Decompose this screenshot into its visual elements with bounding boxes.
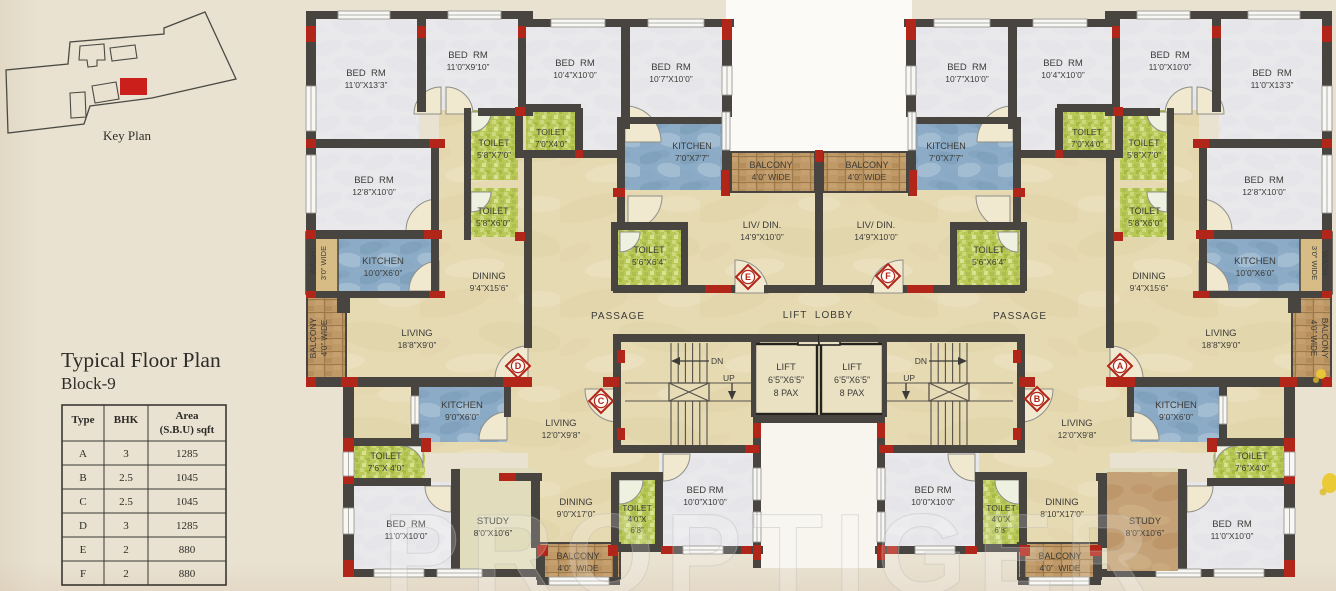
svg-text:E: E [80,544,87,556]
svg-text:11’0”X10’0”: 11’0”X10’0” [1211,531,1254,541]
svg-text:TOILET: TOILET [1236,451,1268,461]
svg-text:KITCHEN: KITCHEN [672,141,712,151]
svg-text:10’0”X6’0”: 10’0”X6’0” [1236,268,1275,278]
svg-text:BALCONY: BALCONY [749,160,792,170]
svg-text:BHK: BHK [114,414,139,426]
svg-text:KITCHEN: KITCHEN [1234,256,1276,267]
svg-text:4’0” WIDE: 4’0” WIDE [320,320,329,356]
svg-text:7’0”X4’0”: 7’0”X4’0” [1071,140,1103,149]
svg-text:12’0”X9’8”: 12’0”X9’8” [542,430,581,440]
svg-text:7’0”X7’7”: 7’0”X7’7” [675,153,709,163]
svg-text:11’0”X9’10”: 11’0”X9’10” [447,62,490,72]
svg-text:11’0”X13’3”: 11’0”X13’3” [1251,80,1294,90]
svg-text:BED RM: BED RM [1252,68,1292,79]
svg-text:WASH: WASH [309,251,318,275]
svg-text:11’0”X13’3”: 11’0”X13’3” [345,80,388,90]
svg-text:3: 3 [123,520,129,532]
svg-text:TOILET: TOILET [478,138,510,148]
svg-text:3’0” WIDE: 3’0” WIDE [1310,246,1319,280]
svg-text:LIFT: LIFT [776,362,796,373]
svg-text:8 PAX: 8 PAX [840,388,865,398]
svg-text:9’0”X6’0”: 9’0”X6’0” [445,412,479,422]
svg-text:LIV/ DIN.: LIV/ DIN. [857,220,896,231]
svg-text:4’0” WIDE: 4’0” WIDE [848,172,887,182]
svg-text:880: 880 [179,544,196,556]
svg-text:1285: 1285 [176,520,199,532]
svg-text:BALCONY: BALCONY [1320,318,1330,359]
svg-text:Key Plan: Key Plan [103,128,152,143]
svg-text:12’8”X10’0”: 12’8”X10’0” [1242,187,1286,197]
svg-text:LIVING: LIVING [401,328,432,339]
svg-text:BALCONY: BALCONY [308,317,318,358]
svg-text:BED RM: BED RM [448,50,488,61]
svg-text:LIV/ DIN.: LIV/ DIN. [743,220,782,231]
svg-text:BALCONY: BALCONY [845,160,888,170]
svg-text:18’8”X9’0”: 18’8”X9’0” [1202,340,1241,350]
svg-text:10’7”X10’0”: 10’7”X10’0” [945,74,989,84]
svg-text:Typical Floor Plan: Typical Floor Plan [61,348,221,372]
svg-text:TOILET: TOILET [536,127,566,137]
svg-text:5’8”X6’0”: 5’8”X6’0” [1128,218,1162,228]
svg-text:F: F [80,568,86,580]
svg-text:2.5: 2.5 [119,496,133,508]
svg-text:BED RM: BED RM [346,68,386,79]
svg-text:TOILET: TOILET [973,245,1005,255]
svg-text:7’6”X 4’0”: 7’6”X 4’0” [368,463,405,473]
svg-text:5’6”X6’4”: 5’6”X6’4” [632,257,666,267]
svg-text:BED RM: BED RM [1244,175,1284,186]
svg-text:Type: Type [71,414,94,426]
svg-text:LIFT: LIFT [842,362,862,373]
svg-text:KITCHEN: KITCHEN [926,141,966,151]
svg-text:1285: 1285 [176,448,199,460]
svg-text:BED RM: BED RM [1212,519,1252,530]
svg-text:C: C [598,396,605,406]
svg-text:14’9”X10’0”: 14’9”X10’0” [740,232,784,242]
svg-text:E: E [745,272,751,282]
svg-text:WASH: WASH [1320,251,1329,275]
svg-text:BED RM: BED RM [947,62,987,73]
svg-text:10’4”X10’0”: 10’4”X10’0” [553,70,597,80]
svg-text:3: 3 [123,448,129,460]
svg-text:DN: DN [915,356,927,366]
svg-text:10’7”X10’0”: 10’7”X10’0” [649,74,693,84]
svg-text:LIVING: LIVING [1061,418,1092,429]
svg-text:TOILET: TOILET [1128,138,1160,148]
svg-text:A: A [1117,361,1124,371]
svg-text:TOILET: TOILET [477,206,509,216]
svg-text:TOILET: TOILET [1129,206,1161,216]
svg-text:12’8”X10’0”: 12’8”X10’0” [352,187,396,197]
svg-text:F: F [885,271,891,281]
svg-text:3’0” WIDE: 3’0” WIDE [319,246,328,280]
svg-text:DINING: DINING [1132,271,1165,282]
svg-text:7’6”X4’0”: 7’6”X4’0” [1235,463,1269,473]
svg-text:DINING: DINING [472,271,505,282]
svg-text:7’0”X7’7”: 7’0”X7’7” [929,153,963,163]
svg-text:12’0”X9’8”: 12’0”X9’8” [1058,430,1097,440]
svg-text:5’6”X6’4”: 5’6”X6’4” [972,257,1006,267]
svg-text:5’8”X6’0”: 5’8”X6’0” [476,218,510,228]
svg-text:9’4”X15’6”: 9’4”X15’6” [1130,283,1169,293]
svg-text:DN: DN [711,356,723,366]
svg-text:4’0” WIDE: 4’0” WIDE [752,172,791,182]
svg-text:BED RM: BED RM [354,175,394,186]
svg-text:D: D [79,520,87,532]
svg-text:5’8”X7’0”: 5’8”X7’0” [477,150,511,160]
svg-text:KITCHEN: KITCHEN [362,256,404,267]
svg-text:BED RM: BED RM [1150,50,1190,61]
svg-text:UP: UP [903,373,915,383]
svg-text:2: 2 [123,568,129,580]
svg-text:11’0”X10’0”: 11’0”X10’0” [1149,62,1192,72]
svg-text:1045: 1045 [176,472,199,484]
svg-text:LIVING: LIVING [1205,328,1236,339]
svg-text:14’9”X10’0”: 14’9”X10’0” [854,232,898,242]
svg-text:D: D [515,361,522,371]
svg-text:Block-9: Block-9 [61,374,116,393]
svg-text:(S.B.U) sqft: (S.B.U) sqft [160,424,215,436]
svg-text:4’0” WIDE: 4’0” WIDE [1309,320,1318,356]
svg-text:BED RM: BED RM [1043,58,1083,69]
svg-text:2: 2 [123,544,129,556]
svg-text:TOILET: TOILET [1072,127,1102,137]
svg-text:880: 880 [179,568,196,580]
svg-text:BED RM: BED RM [555,58,595,69]
svg-text:PROPTIGER: PROPTIGER [383,491,1159,591]
svg-text:1045: 1045 [176,496,199,508]
svg-text:PASSAGE: PASSAGE [591,311,645,322]
svg-text:6’5”X6’5”: 6’5”X6’5” [834,375,870,385]
svg-text:TOILET: TOILET [633,245,665,255]
svg-text:9’0”X6’0”: 9’0”X6’0” [1159,412,1193,422]
svg-text:KITCHEN: KITCHEN [1155,400,1197,411]
svg-text:BED RM: BED RM [651,62,691,73]
svg-text:A: A [79,448,87,460]
svg-text:B: B [79,472,86,484]
svg-text:9’4”X15’6”: 9’4”X15’6” [470,283,509,293]
svg-text:7’0”X4’0”: 7’0”X4’0” [535,140,567,149]
svg-text:10’0”X6’0”: 10’0”X6’0” [364,268,403,278]
svg-text:C: C [79,496,86,508]
svg-text:Area: Area [175,410,199,422]
svg-text:2.5: 2.5 [119,472,133,484]
svg-text:B: B [1034,394,1041,404]
svg-text:8 PAX: 8 PAX [774,388,799,398]
svg-text:18’8”X9’0”: 18’8”X9’0” [398,340,437,350]
svg-text:KITCHEN: KITCHEN [441,400,483,411]
svg-text:5’8”X7’0”: 5’8”X7’0” [1127,150,1161,160]
svg-text:6’5”X6’5”: 6’5”X6’5” [768,375,804,385]
svg-text:PASSAGE: PASSAGE [993,311,1047,322]
svg-text:LIVING: LIVING [545,418,576,429]
svg-text:10’4”X10’0”: 10’4”X10’0” [1041,70,1085,80]
svg-text:UP: UP [723,373,735,383]
svg-text:TOILET: TOILET [370,451,402,461]
svg-text:LIFT LOBBY: LIFT LOBBY [783,310,853,321]
